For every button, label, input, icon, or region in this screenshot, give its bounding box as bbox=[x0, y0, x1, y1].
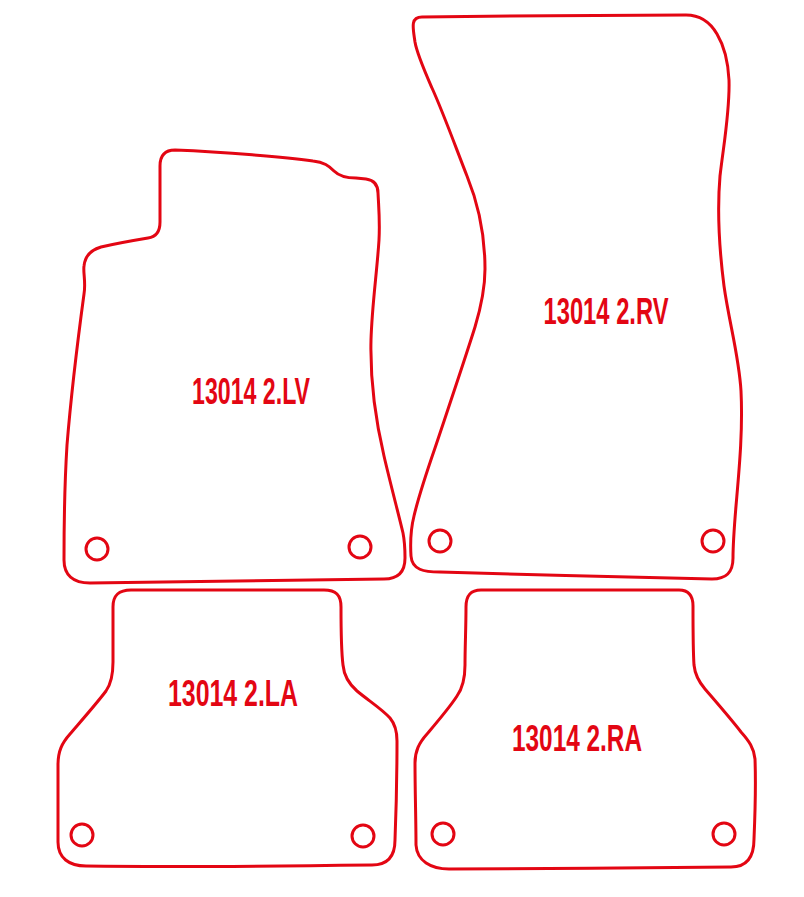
fixing-hole-icon bbox=[429, 530, 451, 552]
fixing-hole-icon bbox=[432, 823, 454, 845]
mat-rear-left-label: 13014 2.LA bbox=[168, 673, 298, 714]
fixing-hole-icon bbox=[702, 530, 724, 552]
fixing-hole-icon bbox=[349, 536, 371, 558]
mat-front-left: 13014 2.LV bbox=[64, 150, 405, 583]
mat-front-left-outline bbox=[64, 150, 405, 583]
floor-mat-template-drawing: 13014 2.LV 13014 2.RV 13014 2.LA 13014 2… bbox=[0, 0, 804, 897]
mat-front-right-label: 13014 2.RV bbox=[544, 291, 669, 332]
fixing-hole-icon bbox=[71, 824, 93, 846]
fixing-hole-icon bbox=[352, 825, 374, 847]
mat-rear-right-label: 13014 2.RA bbox=[512, 718, 642, 759]
mat-rear-left-outline bbox=[58, 590, 397, 866]
mat-front-left-label: 13014 2.LV bbox=[192, 371, 310, 412]
mat-front-right: 13014 2.RV bbox=[411, 15, 742, 579]
mat-rear-right: 13014 2.RA bbox=[415, 590, 755, 869]
fixing-hole-icon bbox=[86, 538, 108, 560]
fixing-hole-icon bbox=[713, 823, 735, 845]
mats-svg: 13014 2.LV 13014 2.RV 13014 2.LA 13014 2… bbox=[0, 0, 804, 897]
mat-rear-left: 13014 2.LA bbox=[58, 590, 397, 866]
